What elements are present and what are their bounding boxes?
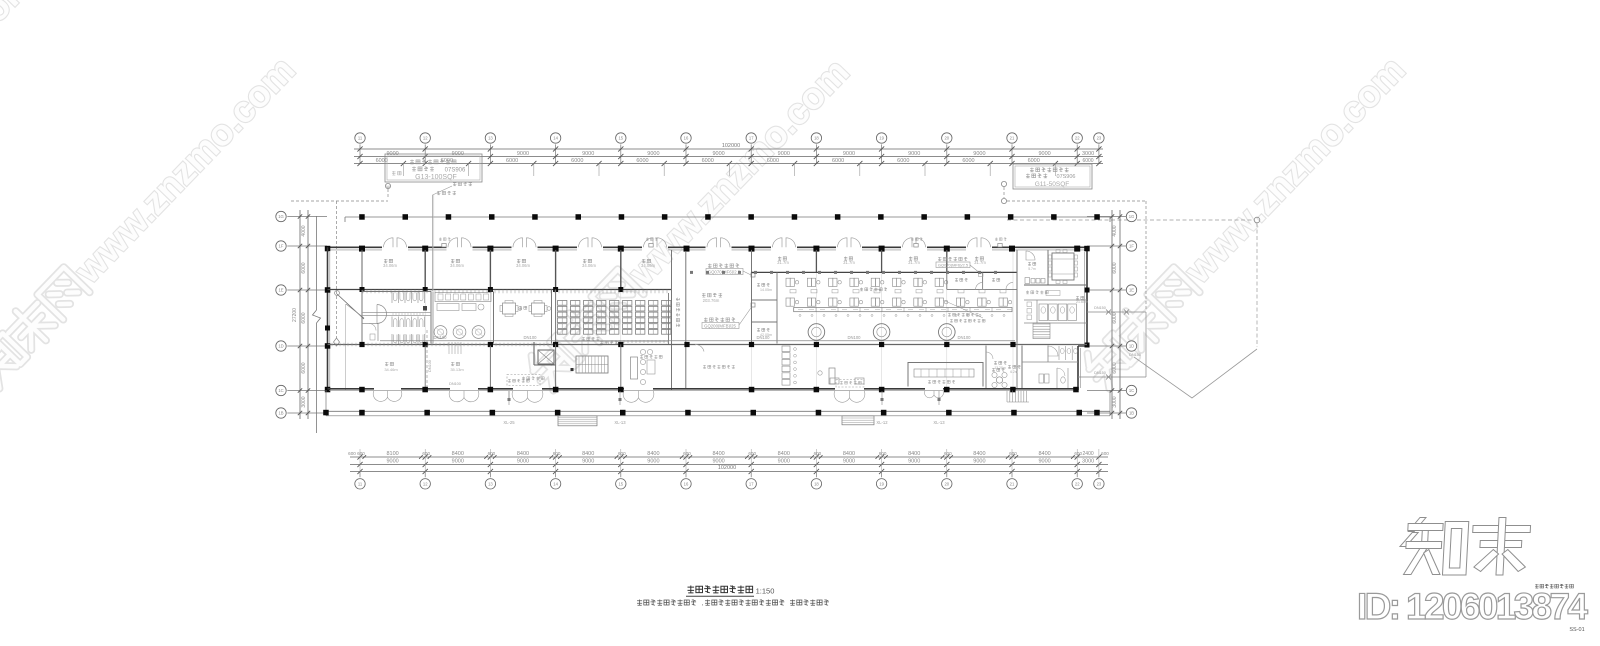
svg-text:8400: 8400 — [843, 451, 855, 457]
svg-text:6000: 6000 — [301, 262, 307, 273]
svg-text:8400: 8400 — [582, 451, 594, 457]
svg-text:15: 15 — [618, 482, 623, 487]
svg-text:14: 14 — [553, 482, 558, 487]
svg-text:DN100: DN100 — [433, 335, 447, 340]
svg-text:18: 18 — [814, 136, 819, 141]
svg-text:6000: 6000 — [702, 158, 714, 164]
svg-text:34.06m: 34.06m — [450, 263, 464, 268]
svg-text:1D: 1D — [278, 344, 283, 349]
svg-text:21: 21 — [1010, 482, 1015, 487]
svg-text:600: 600 — [553, 451, 561, 456]
svg-text:2400: 2400 — [1083, 451, 1094, 457]
svg-text:9000: 9000 — [647, 151, 659, 157]
svg-text:9000: 9000 — [778, 151, 790, 157]
svg-text:9000: 9000 — [778, 459, 790, 465]
svg-text:9000: 9000 — [908, 459, 920, 465]
svg-text:DN100: DN100 — [957, 335, 971, 340]
svg-text:6000: 6000 — [897, 158, 909, 164]
svg-text:XL-25: XL-25 — [503, 420, 515, 425]
svg-text:3000: 3000 — [1082, 151, 1094, 157]
svg-text:3000: 3000 — [301, 396, 307, 407]
svg-text:DN100: DN100 — [449, 382, 461, 386]
svg-text:9000: 9000 — [517, 151, 529, 157]
svg-text:6000: 6000 — [1112, 312, 1118, 323]
svg-text:34.46m: 34.46m — [384, 367, 398, 372]
svg-text:16: 16 — [684, 482, 689, 487]
svg-text:14: 14 — [553, 136, 558, 141]
svg-text:6000: 6000 — [301, 312, 307, 323]
svg-text:6000: 6000 — [1082, 158, 1093, 164]
svg-text:9000: 9000 — [386, 459, 398, 465]
svg-text:5.7m: 5.7m — [1028, 267, 1036, 271]
svg-text:9000: 9000 — [973, 459, 985, 465]
svg-text:23: 23 — [1097, 136, 1102, 141]
svg-text:21: 21 — [1010, 136, 1015, 141]
svg-text:1B: 1B — [1129, 411, 1134, 416]
svg-text:8400: 8400 — [517, 451, 529, 457]
svg-text:8100: 8100 — [386, 451, 398, 457]
svg-text:600: 600 — [944, 451, 952, 456]
svg-text:8400: 8400 — [1038, 451, 1050, 457]
svg-text:DN100: DN100 — [847, 335, 861, 340]
svg-text:6000: 6000 — [571, 158, 583, 164]
svg-text:31.7m: 31.7m — [777, 260, 789, 265]
svg-text:23: 23 — [1097, 482, 1102, 487]
svg-text:6000: 6000 — [1112, 262, 1118, 273]
svg-text:8400: 8400 — [778, 451, 790, 457]
svg-text:1G: 1G — [1129, 214, 1135, 219]
svg-text:1E: 1E — [1129, 288, 1134, 293]
svg-text:9000: 9000 — [712, 151, 724, 157]
svg-text:600: 600 — [422, 451, 430, 456]
svg-text:13: 13 — [488, 136, 493, 141]
svg-text:31.7m: 31.7m — [843, 260, 855, 265]
svg-text:G11-50SQF: G11-50SQF — [1035, 181, 1070, 188]
svg-text:102000: 102000 — [722, 143, 740, 149]
svg-text:31.7m: 31.7m — [974, 260, 986, 265]
svg-text:ID: 1206013874: ID: 1206013874 — [1357, 586, 1588, 627]
svg-text:6000: 6000 — [636, 158, 648, 164]
svg-text:20: 20 — [944, 136, 949, 141]
svg-text:27200: 27200 — [292, 308, 298, 322]
svg-text:4000: 4000 — [301, 225, 307, 236]
svg-text:11: 11 — [358, 136, 363, 141]
svg-text:19: 19 — [879, 482, 884, 487]
svg-text:600: 600 — [618, 451, 626, 456]
svg-text:12: 12 — [423, 136, 428, 141]
svg-text:XL-12: XL-12 — [876, 420, 888, 425]
svg-text:DN150: DN150 — [1129, 353, 1141, 357]
svg-text:14.05m: 14.05m — [760, 288, 772, 292]
svg-text:600: 600 — [348, 451, 356, 456]
svg-text:34.06m: 34.06m — [582, 263, 596, 268]
svg-text:6000: 6000 — [1112, 362, 1118, 373]
svg-text:13: 13 — [488, 482, 493, 487]
svg-text:1:150: 1:150 — [756, 587, 775, 596]
svg-text:16: 16 — [684, 136, 689, 141]
svg-text:4000: 4000 — [1112, 225, 1118, 236]
svg-text:9000: 9000 — [582, 459, 594, 465]
svg-text:600: 600 — [748, 451, 756, 456]
svg-text:3000: 3000 — [1082, 459, 1094, 465]
svg-text:6000: 6000 — [301, 362, 307, 373]
svg-text:21.65m: 21.65m — [1076, 300, 1088, 304]
svg-text:1C: 1C — [278, 388, 283, 393]
svg-text:35.13m: 35.13m — [450, 367, 464, 372]
svg-text:600: 600 — [1101, 451, 1109, 456]
svg-text:6000: 6000 — [962, 158, 974, 164]
svg-text:22: 22 — [1075, 136, 1080, 141]
svg-text:1F: 1F — [1129, 244, 1134, 249]
svg-text:600: 600 — [1009, 451, 1017, 456]
svg-text:34.06m: 34.06m — [641, 263, 655, 268]
svg-text:XL-13: XL-13 — [933, 420, 945, 425]
svg-text:11: 11 — [358, 482, 363, 487]
svg-text:18: 18 — [814, 482, 819, 487]
svg-text:17: 17 — [749, 482, 754, 487]
svg-text:15: 15 — [618, 136, 623, 141]
svg-text:22: 22 — [1075, 482, 1080, 487]
svg-text:6000: 6000 — [767, 158, 779, 164]
svg-text:DN100: DN100 — [428, 360, 432, 372]
svg-text:9000: 9000 — [712, 459, 724, 465]
svg-text:9000: 9000 — [1038, 459, 1050, 465]
svg-text:17: 17 — [749, 136, 754, 141]
svg-text:07S906: 07S906 — [445, 168, 466, 174]
svg-text:9000: 9000 — [1038, 151, 1050, 157]
svg-text:31.7m: 31.7m — [908, 260, 920, 265]
svg-text:GQ200(MFB)/25: GQ200(MFB)/25 — [704, 323, 736, 328]
svg-text:8400: 8400 — [973, 451, 985, 457]
svg-text:GQ070(MF6)/2.5: GQ070(MF6)/2.5 — [938, 263, 969, 268]
svg-text:1B: 1B — [278, 411, 283, 416]
svg-text:DN150: DN150 — [1094, 306, 1106, 310]
svg-text:8400: 8400 — [908, 451, 920, 457]
svg-text:9000: 9000 — [843, 151, 855, 157]
svg-text:600: 600 — [879, 451, 887, 456]
svg-text:19: 19 — [879, 136, 884, 141]
svg-text:6.2m: 6.2m — [1010, 370, 1018, 374]
svg-text:1G: 1G — [278, 214, 284, 219]
svg-text:1C: 1C — [1129, 388, 1134, 393]
svg-text:9000: 9000 — [582, 151, 594, 157]
svg-text:203.76m: 203.76m — [703, 298, 720, 303]
svg-text:600: 600 — [488, 451, 496, 456]
svg-text:DN150: DN150 — [1094, 371, 1106, 375]
svg-text:8400: 8400 — [712, 451, 724, 457]
svg-text:12: 12 — [423, 482, 428, 487]
svg-text:8400: 8400 — [452, 451, 464, 457]
svg-text:6000: 6000 — [832, 158, 844, 164]
svg-text:8400: 8400 — [647, 451, 659, 457]
svg-text:07S906: 07S906 — [1057, 174, 1076, 180]
svg-text:SS-01: SS-01 — [1569, 627, 1584, 633]
svg-text:9000: 9000 — [973, 151, 985, 157]
svg-text:600: 600 — [814, 451, 822, 456]
svg-text:3000: 3000 — [1112, 396, 1118, 407]
svg-text:G13-100SQF: G13-100SQF — [415, 174, 457, 181]
svg-text:1D: 1D — [1129, 344, 1134, 349]
svg-text:34.06m: 34.06m — [516, 263, 530, 268]
svg-text:9000: 9000 — [843, 459, 855, 465]
svg-text:6000: 6000 — [1028, 158, 1040, 164]
svg-text:600: 600 — [1074, 451, 1082, 456]
svg-text:9000: 9000 — [908, 151, 920, 157]
svg-text:6000: 6000 — [506, 158, 518, 164]
svg-text:102000: 102000 — [718, 465, 736, 471]
svg-text:DN100: DN100 — [756, 335, 770, 340]
svg-text:600: 600 — [683, 451, 691, 456]
svg-text:XL-13: XL-13 — [614, 420, 626, 425]
svg-text:9000: 9000 — [517, 459, 529, 465]
svg-text:34.06m: 34.06m — [383, 263, 397, 268]
svg-text:20: 20 — [944, 482, 949, 487]
svg-text:9000: 9000 — [452, 459, 464, 465]
svg-text:9000: 9000 — [647, 459, 659, 465]
svg-text:1F: 1F — [279, 244, 284, 249]
svg-text:6000: 6000 — [376, 158, 388, 164]
svg-text:1E: 1E — [278, 288, 283, 293]
svg-text:600: 600 — [357, 451, 365, 456]
svg-text:DN100: DN100 — [523, 335, 537, 340]
